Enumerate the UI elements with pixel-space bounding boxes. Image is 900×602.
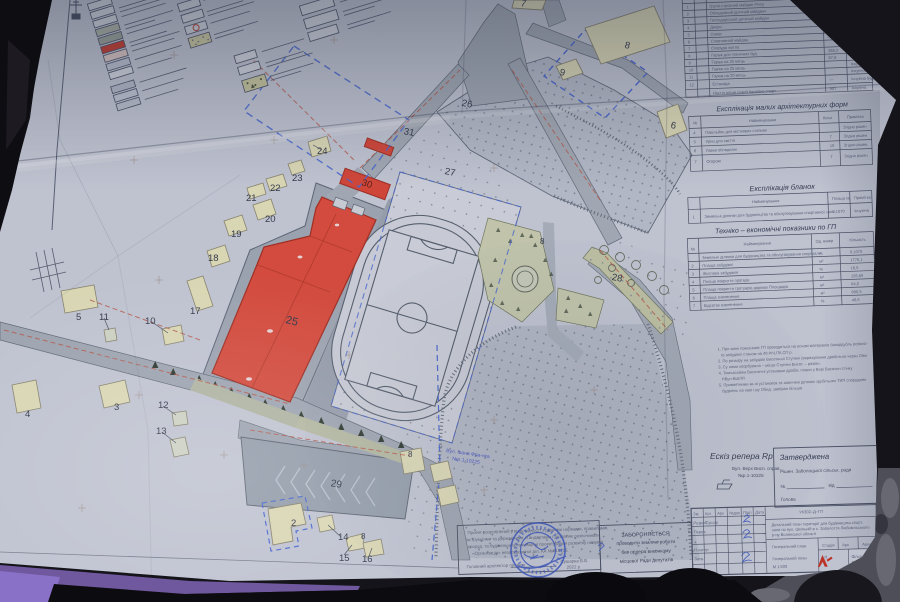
svg-text:Найменування: Найменування — [752, 198, 780, 204]
svg-text:Генеральний план: Генеральний план — [772, 543, 806, 549]
svg-text:18: 18 — [208, 253, 219, 264]
svg-text:19: 19 — [231, 229, 242, 240]
svg-text:УКЗ02–Д–ГП: УКЗ02–Д–ГП — [799, 509, 823, 515]
svg-text:Найменування: Найменування — [743, 240, 771, 246]
svg-text:Генеральний план: Генеральний план — [772, 555, 806, 561]
svg-text:20: 20 — [265, 214, 276, 225]
svg-text:П: П — [824, 555, 827, 560]
svg-text:М 1:500: М 1:500 — [773, 564, 788, 569]
svg-text:21: 21 — [246, 193, 257, 204]
svg-text:№: № — [691, 246, 695, 251]
